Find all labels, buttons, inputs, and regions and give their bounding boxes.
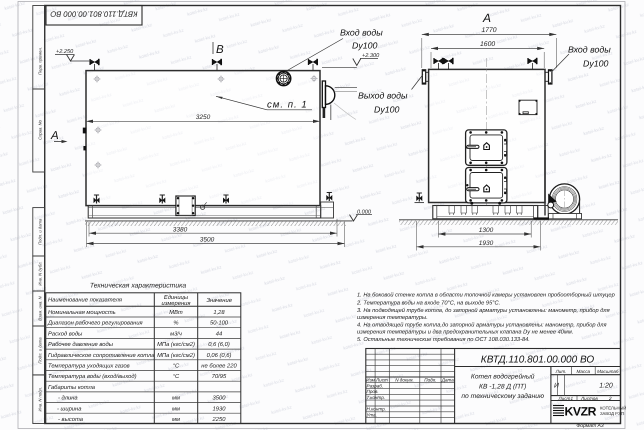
svg-text:2: 2 [608,396,612,401]
svg-text:измерения температуры.: измерения температуры. [357,315,428,321]
svg-text:Подп. и дата: Подп. и дата [38,218,43,245]
svg-text:Расход воды: Расход воды [48,330,83,337]
svg-text:Dy100: Dy100 [352,41,378,51]
svg-text:Инв. N дубл.: Инв. N дубл. [38,261,43,285]
svg-text:мм: мм [172,406,180,412]
svg-text:N докум.: N докум. [395,378,414,383]
svg-text:Лит.: Лит. [555,369,567,374]
svg-text:Номинальная мощность: Номинальная мощность [48,310,116,316]
svg-text:2. Температура воды на входе: 2. Температура воды на входе 70°С, на вы… [356,300,500,307]
svg-text:Листов: Листов [580,396,598,401]
svg-text:В: В [216,44,224,56]
svg-text:А: А [482,11,491,25]
svg-text:Справ. No: Справ. No [38,119,43,140]
svg-text:1300: 1300 [479,227,494,234]
svg-text:1. На боковой стенке котла в: 1. На боковой стенке котла в области топ… [357,292,615,299]
svg-text:3500: 3500 [213,395,227,402]
svg-text:1930: 1930 [213,405,227,412]
svg-text:3250: 3250 [196,114,211,121]
svg-text:1: 1 [571,396,574,401]
svg-text:Формат А3: Формат А3 [576,423,604,429]
svg-text:Рабочее давление воды: Рабочее давление воды [48,341,114,348]
svg-text:Выход воды: Выход воды [358,91,408,101]
svg-text:Изм: Изм [366,378,375,383]
svg-text:1770: 1770 [481,27,496,34]
svg-text:°С: °С [173,363,180,370]
svg-text:Dy100: Dy100 [374,105,400,115]
svg-text:Котел водогрейный: Котел водогрейный [471,374,535,381]
svg-text:МВт: МВт [169,310,183,316]
svg-text:МПа (кгс/см2): МПа (кгс/см2) [157,352,195,359]
svg-text:Вход воды: Вход воды [568,45,611,55]
svg-text:1600: 1600 [480,41,495,48]
svg-text:мм: мм [172,396,180,402]
svg-text:Н.контр.: Н.контр. [367,407,386,412]
svg-text:3500: 3500 [200,237,215,244]
svg-text:Подп.: Подп. [424,378,436,383]
svg-text:по техническому заданию: по техническому заданию [461,393,544,400]
svg-text:И: И [554,383,559,390]
svg-text:Утв.: Утв. [367,413,377,418]
svg-text:ЗАВОД РЭП: ЗАВОД РЭП [600,411,624,416]
svg-text:Инв. N подл.: Инв. N подл. [38,387,43,411]
svg-text:Т.контр.: Т.контр. [367,395,386,400]
svg-text:5. Остальные технические треб: 5. Остальные технические требования по О… [357,336,530,343]
svg-text:Разраб.: Разраб. [367,383,384,388]
svg-text:3380: 3380 [173,226,188,233]
svg-text:не более 220: не более 220 [201,363,237,370]
svg-text:КВ -1,28 Д (ПТ): КВ -1,28 Д (ПТ) [479,384,526,391]
svg-text:1:20: 1:20 [599,383,613,390]
svg-text:Температура уходящих газов: Температура уходящих газов [48,363,130,370]
svg-text:- ширина: - ширина [57,406,82,412]
svg-text:Вход воды: Вход воды [340,28,383,38]
svg-text:Взам. инв. N: Взам. инв. N [38,295,43,320]
svg-text:+2.300: +2.300 [362,53,380,59]
svg-text:44: 44 [216,331,222,337]
svg-text:50-100: 50-100 [210,320,229,327]
svg-text:КОТЕЛЬНЫЙ: КОТЕЛЬНЫЙ [600,406,626,411]
svg-text:Лист: Лист [558,396,571,401]
svg-text:Перв. примен.: Перв. примен. [38,47,43,75]
svg-text:3. На подводящей трубе котла,: 3. На подводящей трубе котла, до запорно… [357,307,610,314]
svg-text:Масштаб: Масштаб [597,369,619,374]
svg-text:4. На отводящей трубе котла,д: 4. На отводящей трубе котла,до запорной … [357,321,607,328]
svg-text:°С: °С [173,373,180,380]
svg-text:м3/ч: м3/ч [170,330,182,337]
svg-text:Лист: Лист [375,378,388,383]
svg-text:Пров.: Пров. [367,389,379,394]
svg-text:Дата: Дата [441,378,455,383]
svg-text:1930: 1930 [479,240,494,247]
svg-text:КВТД.110.801.00.000 ВО: КВТД.110.801.00.000 ВО [50,9,137,18]
svg-text:KVZR: KVZR [565,405,597,419]
svg-text:1,28: 1,28 [213,309,225,316]
svg-text:Подп. и дата: Подп. и дата [38,337,43,364]
svg-text:2250: 2250 [212,416,227,423]
svg-text:МПа (кгс/см2): МПа (кгс/см2) [157,341,195,348]
svg-text:Наименование показателя: Наименование показателя [48,298,122,304]
svg-text:измерения: измерения [161,301,190,307]
svg-text:Значение: Значение [206,297,232,304]
svg-text:измерения температуры и два пр: измерения температуры и два предохраните… [357,329,573,336]
svg-text:Диапазон рабочего регулировани: Диапазон рабочего регулирования [47,320,143,327]
svg-text:%: % [173,320,178,327]
svg-text:мм: мм [172,417,180,423]
svg-text:- длина: - длина [58,395,78,402]
svg-text:Единицы: Единицы [164,294,189,301]
svg-text:Температура воды (вход/выход): Температура воды (вход/выход) [48,373,137,380]
svg-text:см. п. 1: см. п. 1 [267,100,308,111]
svg-text:Гидравлическое сопротивление к: Гидравлическое сопротивление котла [48,352,155,359]
svg-text:0,6 (6,0): 0,6 (6,0) [208,341,230,348]
svg-text:+2.250: +2.250 [56,49,74,55]
svg-text:Масса: Масса [577,369,591,374]
svg-text:70/95: 70/95 [212,373,227,380]
svg-text:КВТД.110.801.00.000 ВО: КВТД.110.801.00.000 ВО [481,355,595,366]
svg-text:Dy100: Dy100 [583,59,609,69]
svg-text:А: А [50,130,59,142]
svg-text:0,06 (0,6): 0,06 (0,6) [207,352,232,359]
svg-text:Габариты котла: Габариты котла [48,384,96,391]
svg-text:Техническая характеристика: Техническая характеристика [90,283,186,290]
svg-text:- высота: - высота [58,417,84,423]
